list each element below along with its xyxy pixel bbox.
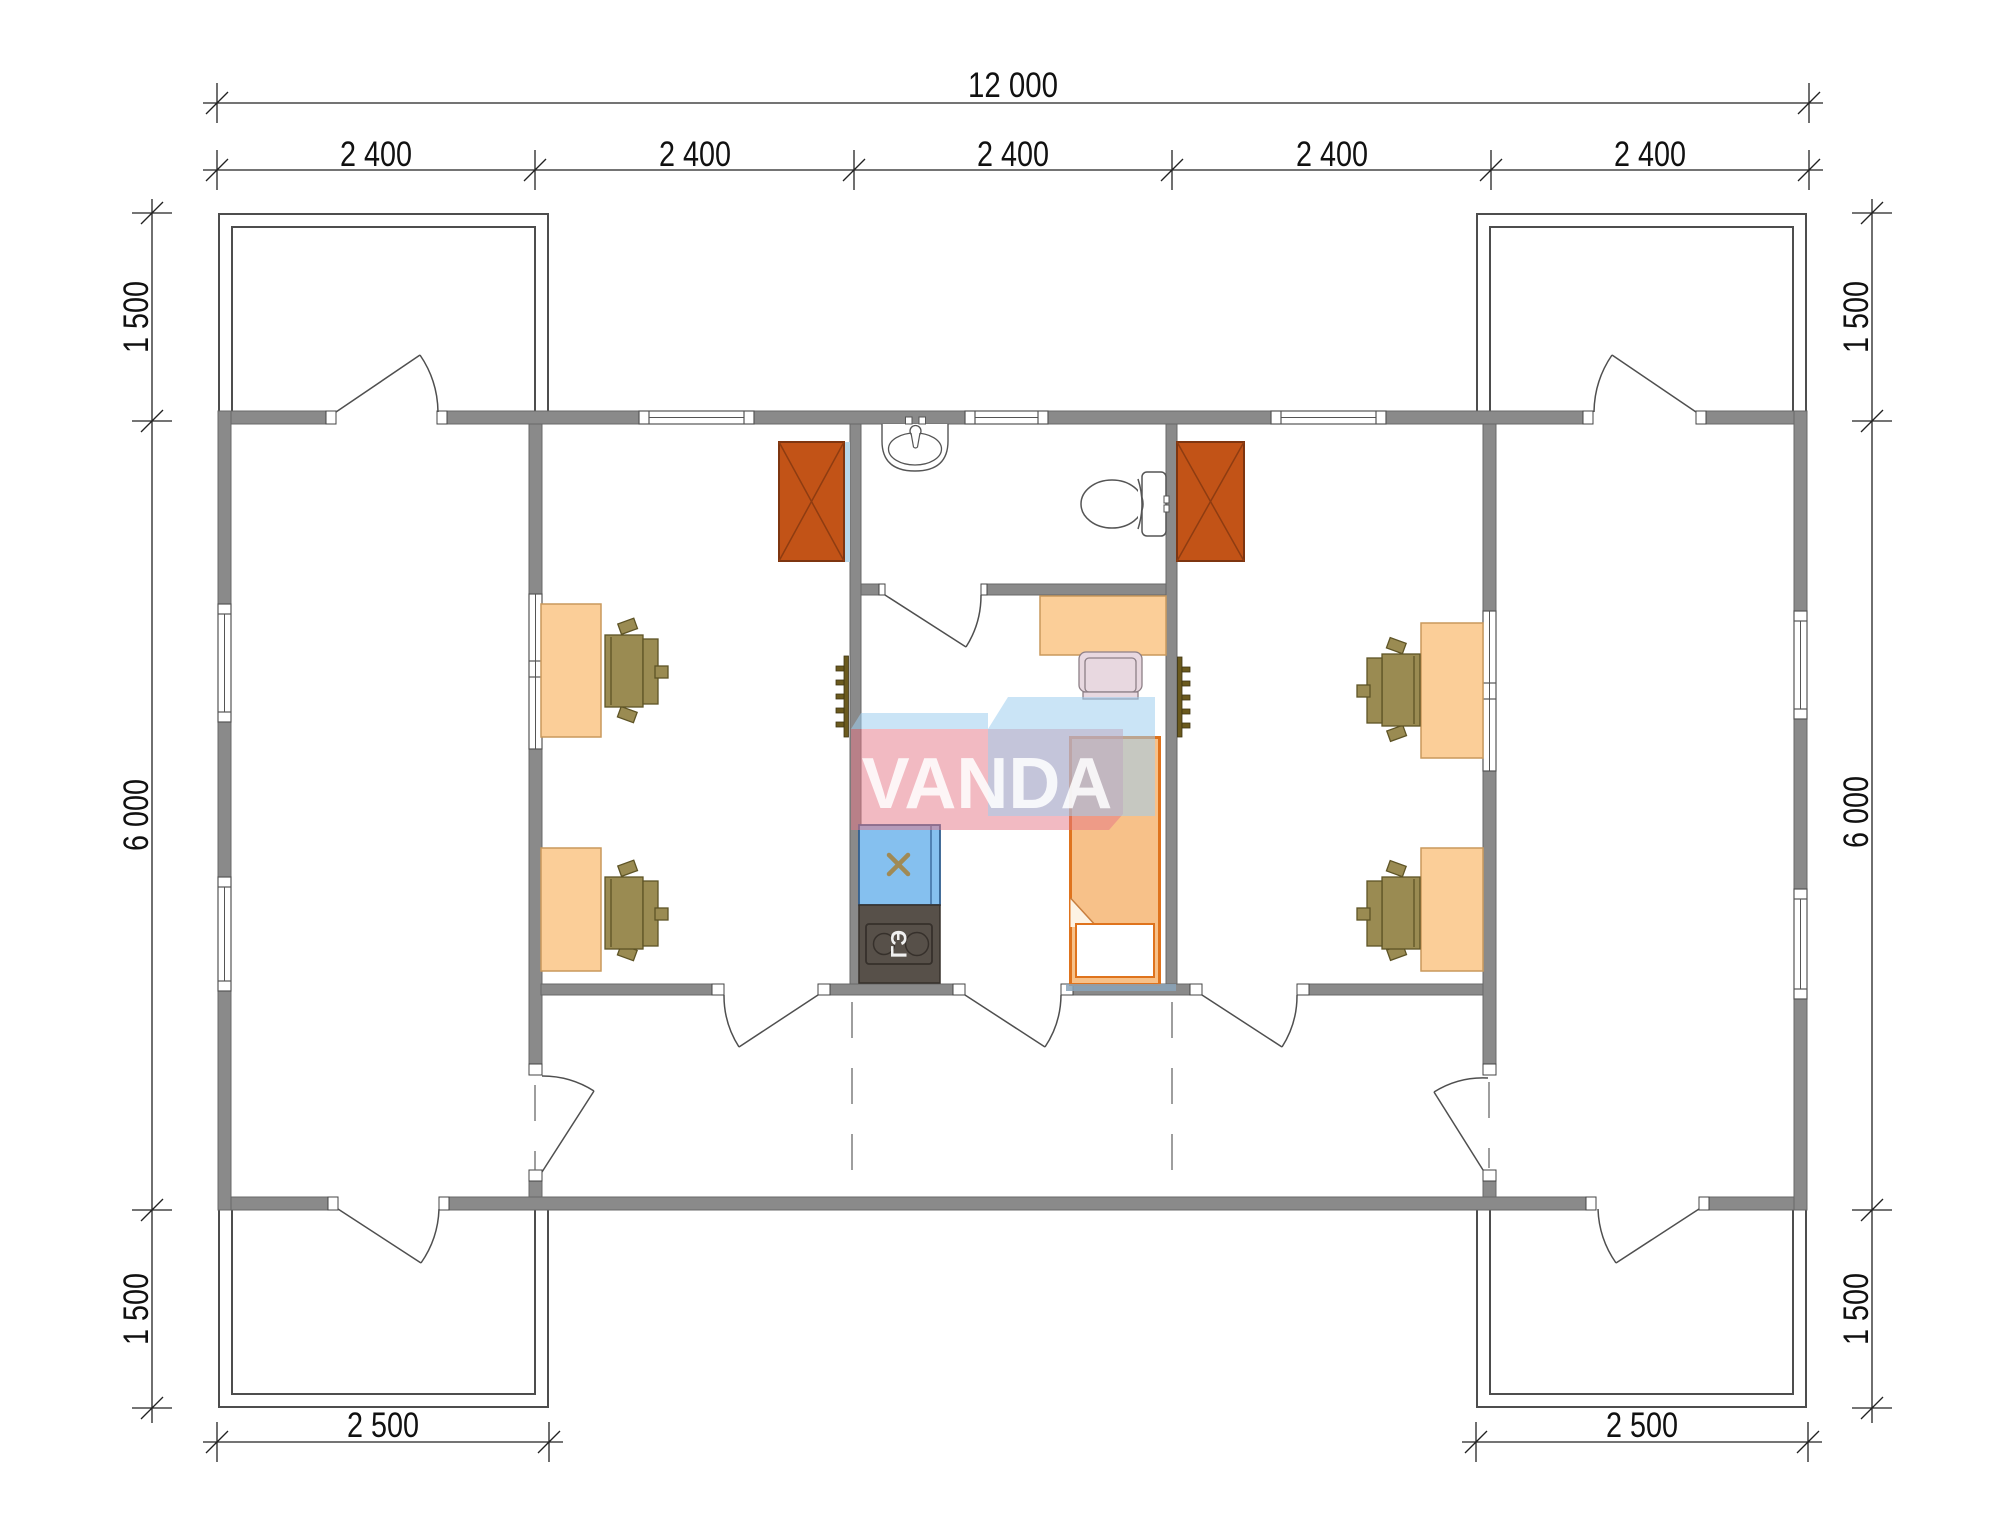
svg-text:6 000: 6 000 bbox=[117, 779, 156, 851]
svg-text:1 500: 1 500 bbox=[1837, 281, 1876, 353]
svg-text:1 500: 1 500 bbox=[117, 1273, 156, 1345]
svg-text:2 400: 2 400 bbox=[977, 135, 1049, 174]
svg-text:2 400: 2 400 bbox=[1614, 135, 1686, 174]
svg-text:2 400: 2 400 bbox=[340, 135, 412, 174]
svg-text:2 400: 2 400 bbox=[659, 135, 731, 174]
svg-text:ГЭ: ГЭ bbox=[887, 930, 912, 958]
svg-text:2 400: 2 400 bbox=[1296, 135, 1368, 174]
svg-text:2 500: 2 500 bbox=[1606, 1406, 1678, 1445]
svg-text:VANDA: VANDA bbox=[862, 744, 1113, 824]
svg-text:2 500: 2 500 bbox=[347, 1406, 419, 1445]
svg-text:1 500: 1 500 bbox=[117, 281, 156, 353]
svg-text:6 000: 6 000 bbox=[1837, 776, 1876, 848]
svg-text:1 500: 1 500 bbox=[1837, 1273, 1876, 1345]
svg-text:12 000: 12 000 bbox=[968, 66, 1058, 105]
